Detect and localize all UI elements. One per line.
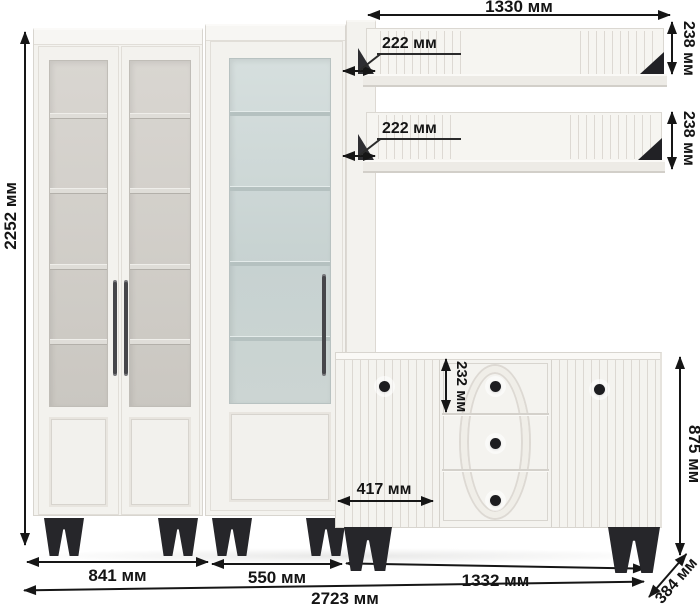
shelf-board bbox=[363, 74, 667, 87]
knob bbox=[490, 438, 501, 449]
dim-arrow-display-width bbox=[212, 563, 342, 565]
dim-label-shelf2-depth: 222 мм bbox=[382, 120, 437, 138]
dim-label-shelf1-depth: 222 мм bbox=[382, 35, 437, 53]
door-panel bbox=[129, 417, 191, 507]
dim-arrow-total-height bbox=[24, 32, 26, 545]
shelf-groove-decor bbox=[573, 31, 657, 75]
cabinet-shelf bbox=[50, 188, 107, 194]
dim-label-sideboard-height: 875 мм bbox=[684, 425, 700, 483]
dim-label-drawer-height: 232 мм bbox=[453, 361, 470, 412]
dim-label-total-height: 2252 мм bbox=[1, 182, 21, 250]
knob bbox=[379, 381, 390, 392]
dim-arrow-sideboard-height bbox=[679, 357, 681, 555]
glass-shelf bbox=[230, 261, 330, 266]
glass-shelf bbox=[230, 336, 330, 341]
door-handle bbox=[124, 282, 128, 374]
dim-arrow-bookcase-width bbox=[27, 561, 208, 563]
door-panel bbox=[229, 412, 331, 502]
cabinet-shelf bbox=[50, 113, 107, 119]
glass-pane bbox=[49, 60, 108, 407]
display-cabinet bbox=[205, 24, 346, 516]
drawer-divider bbox=[442, 413, 549, 415]
bookcase-door-left bbox=[38, 46, 119, 515]
bookcase-double bbox=[33, 28, 203, 516]
dim-label-bookcase-width: 841 мм bbox=[27, 566, 208, 586]
sideboard-door-right bbox=[551, 360, 661, 527]
drawer-divider bbox=[442, 469, 549, 471]
glass-shelf bbox=[230, 111, 330, 116]
cabinet-shelf bbox=[130, 113, 190, 119]
dim-arrow-drawer-height bbox=[445, 359, 447, 412]
door-panel bbox=[49, 417, 108, 507]
knob bbox=[490, 381, 501, 392]
cabinet-shelf bbox=[50, 264, 107, 270]
dim-arrow-shelf1-height bbox=[671, 22, 673, 74]
bookcase-door-right bbox=[121, 46, 200, 515]
bookcase-cornice bbox=[34, 30, 202, 45]
sideboard-top bbox=[336, 353, 660, 360]
dim-label-total-width: 2723 мм bbox=[235, 589, 455, 609]
display-cabinet-cornice bbox=[206, 26, 345, 41]
dim-label-shelf2-height: 238 мм bbox=[679, 111, 697, 166]
shelf-board bbox=[363, 160, 665, 173]
dim-label-shelf1-height: 238 мм bbox=[679, 21, 697, 76]
display-door-handle bbox=[322, 276, 326, 374]
dim-arrow-shelf2-depth bbox=[343, 155, 375, 157]
dim-arrow-shelf1-depth bbox=[343, 70, 375, 72]
cabinet-shelf bbox=[50, 339, 107, 345]
dim-arrow-door-width bbox=[338, 500, 433, 502]
knob bbox=[594, 384, 605, 395]
cabinet-shelf bbox=[130, 339, 190, 345]
dim-arrow-shelf2-height bbox=[671, 112, 673, 169]
glass-shelf bbox=[230, 186, 330, 191]
leader-line bbox=[377, 138, 461, 140]
dim-label-door-width: 417 мм bbox=[334, 481, 434, 499]
dim-label-shelf-width: 1330 мм bbox=[368, 0, 670, 17]
shelf-groove-decor bbox=[563, 115, 655, 159]
cabinet-shelf bbox=[130, 264, 190, 270]
furniture-dimension-diagram: 2252 мм 1330 мм 222 мм 222 мм 238 мм 238… bbox=[0, 0, 700, 610]
cabinet-shelf bbox=[130, 188, 190, 194]
display-glass-pane bbox=[229, 58, 331, 404]
knob bbox=[490, 495, 501, 506]
leader-line bbox=[377, 53, 461, 55]
door-handle bbox=[113, 282, 117, 374]
glass-pane bbox=[129, 60, 191, 407]
